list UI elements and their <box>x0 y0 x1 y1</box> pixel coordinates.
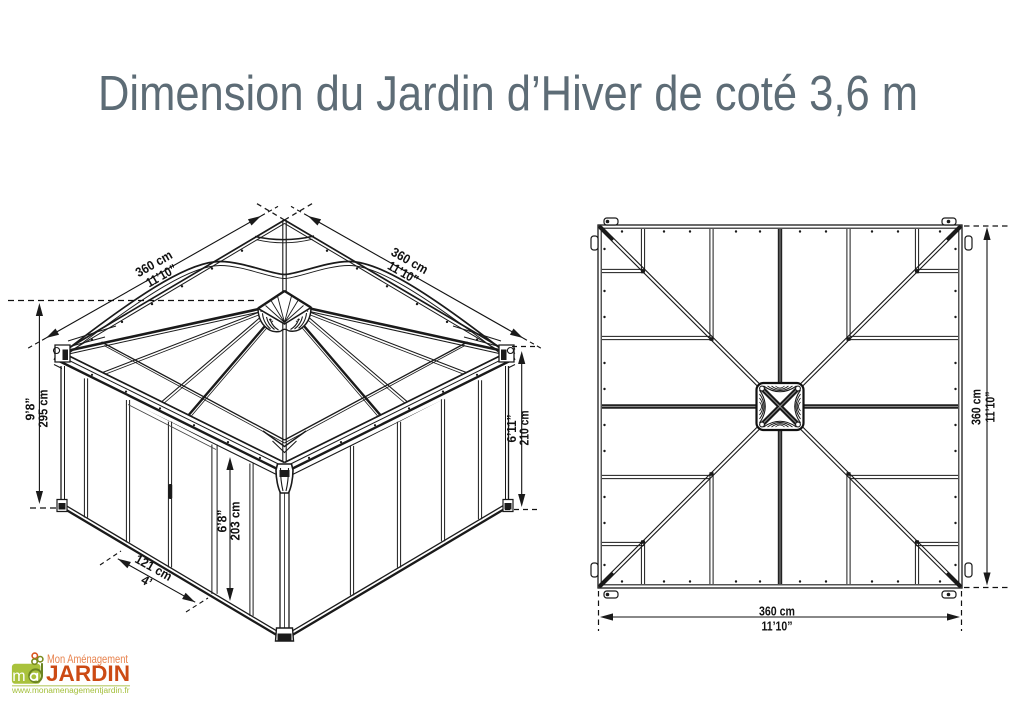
svg-text:6’11”: 6’11” <box>504 415 519 443</box>
svg-text:9’8”: 9’8” <box>23 398 38 421</box>
svg-text:Dimension du Jardin d’Hiver de: Dimension du Jardin d’Hiver de coté 3,6 … <box>98 67 918 121</box>
svg-text:11’10”: 11’10” <box>762 619 793 634</box>
svg-text:11’10”: 11’10” <box>983 392 998 423</box>
svg-text:6’8”: 6’8” <box>215 510 230 533</box>
svg-text:295 cm: 295 cm <box>36 390 51 428</box>
svg-text:m: m <box>12 668 25 685</box>
svg-text:www.monamenagementjardin.fr: www.monamenagementjardin.fr <box>11 686 130 695</box>
svg-text:360 cm: 360 cm <box>969 389 984 425</box>
svg-text:360 cm: 360 cm <box>759 604 795 619</box>
svg-text:JARDIN: JARDIN <box>46 661 130 686</box>
svg-text:203 cm: 203 cm <box>228 502 243 541</box>
